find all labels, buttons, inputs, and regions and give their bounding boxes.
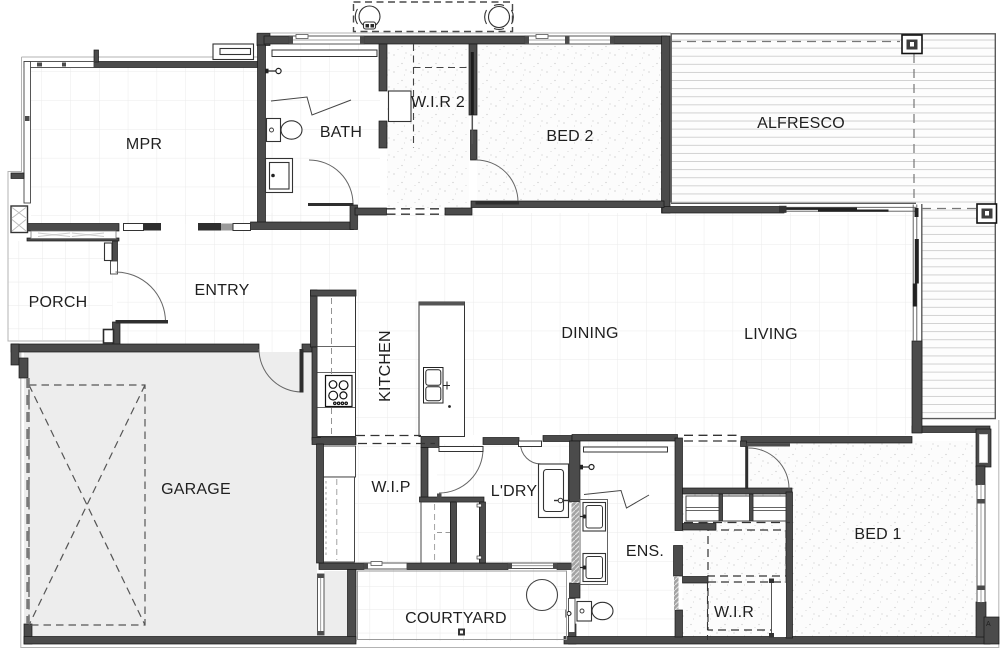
svg-text:L'DRY: L'DRY bbox=[491, 483, 538, 500]
svg-text:COURTYARD: COURTYARD bbox=[405, 610, 507, 627]
svg-text:BED 1: BED 1 bbox=[854, 526, 901, 543]
svg-text:ALFRESCO: ALFRESCO bbox=[757, 115, 845, 132]
svg-text:LIVING: LIVING bbox=[744, 326, 798, 343]
svg-text:W.I.R 2: W.I.R 2 bbox=[411, 94, 465, 111]
svg-text:ENS.: ENS. bbox=[626, 543, 664, 560]
svg-text:W.I.P: W.I.P bbox=[371, 479, 410, 496]
svg-text:BATH: BATH bbox=[320, 124, 362, 141]
svg-text:DINING: DINING bbox=[561, 325, 618, 342]
svg-text:W.I.R: W.I.R bbox=[714, 604, 754, 621]
svg-text:A: A bbox=[986, 621, 991, 628]
svg-text:PORCH: PORCH bbox=[29, 294, 88, 311]
svg-text:MPR: MPR bbox=[126, 136, 162, 153]
svg-text:BED 2: BED 2 bbox=[546, 128, 593, 145]
svg-text:KITCHEN: KITCHEN bbox=[377, 330, 394, 402]
svg-text:ENTRY: ENTRY bbox=[195, 282, 250, 299]
svg-text:GARAGE: GARAGE bbox=[161, 481, 231, 498]
